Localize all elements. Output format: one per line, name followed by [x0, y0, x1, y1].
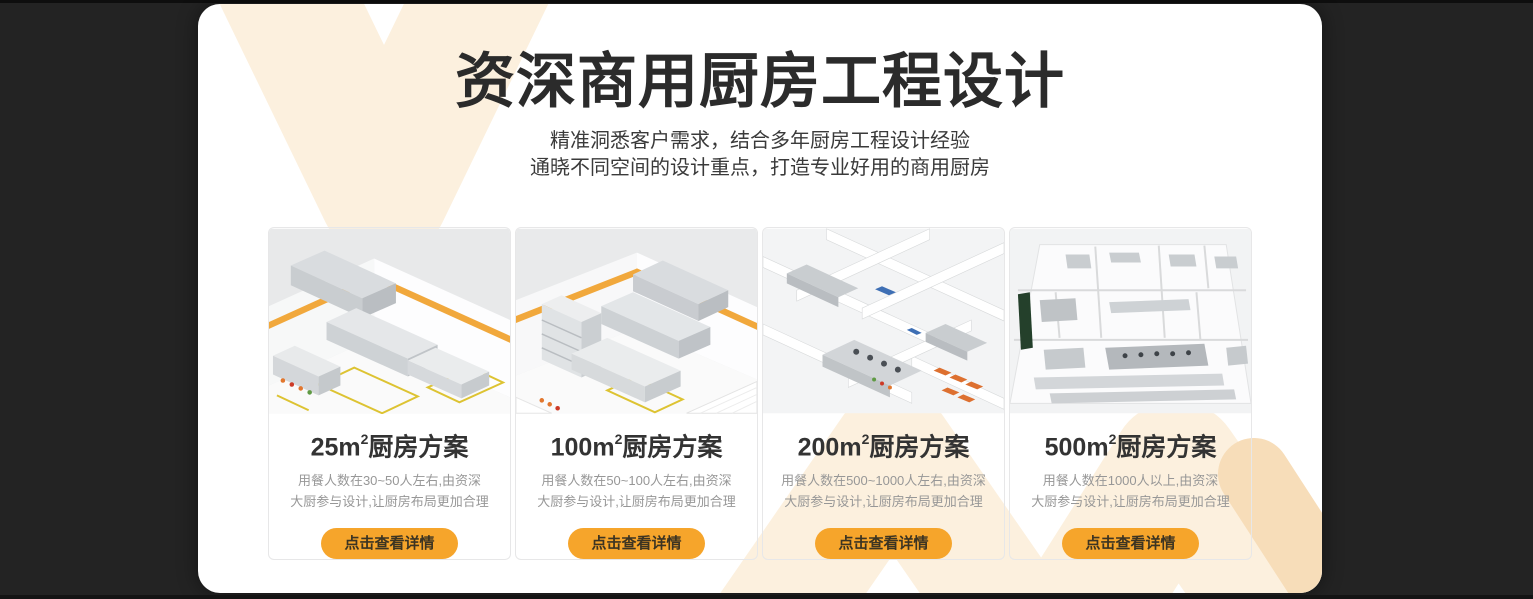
subtitle-line-2: 通晓不同空间的设计重点，打造专业好用的商用厨房	[198, 155, 1322, 182]
view-details-button-25m2[interactable]: 点击查看详情	[321, 528, 457, 559]
bottom-edge-strip	[0, 595, 1533, 599]
card-description: 用餐人数在30~50人左右,由资深 大厨参与设计,让厨房布局更加合理	[269, 470, 510, 512]
view-details-button-100m2[interactable]: 点击查看详情	[568, 528, 704, 559]
card-title: 25m2厨房方案	[269, 426, 510, 462]
card-title: 500m2厨房方案	[1010, 426, 1251, 462]
card-description: 用餐人数在1000人以上,由资深 大厨参与设计,让厨房布局更加合理	[1010, 470, 1251, 512]
page-background: { "header": { "title": "资深商用厨房工程设计", "su…	[0, 0, 1533, 599]
subtitle-line-1: 精准洞悉客户需求，结合多年厨房工程设计经验	[198, 128, 1322, 155]
plan-card-200m2: 200m2厨房方案 用餐人数在500~1000人左右,由资深 大厨参与设计,让厨…	[762, 227, 1005, 560]
plan-card-25m2: 25m2厨房方案 用餐人数在30~50人左右,由资深 大厨参与设计,让厨房布局更…	[268, 227, 511, 560]
view-details-button-500m2[interactable]: 点击查看详情	[1062, 528, 1198, 559]
plan-cards-row: 25m2厨房方案 用餐人数在30~50人左右,由资深 大厨参与设计,让厨房布局更…	[268, 227, 1252, 560]
plan-card-100m2: 100m2厨房方案 用餐人数在50~100人左右,由资深 大厨参与设计,让厨房布…	[515, 227, 758, 560]
kitchen-render-25m2-image	[269, 228, 510, 414]
card-title: 200m2厨房方案	[763, 426, 1004, 462]
card-title: 100m2厨房方案	[516, 426, 757, 462]
plan-card-500m2: 500m2厨房方案 用餐人数在1000人以上,由资深 大厨参与设计,让厨房布局更…	[1009, 227, 1252, 560]
kitchen-render-100m2-image	[516, 228, 757, 414]
card-description: 用餐人数在500~1000人左右,由资深 大厨参与设计,让厨房布局更加合理	[763, 470, 1004, 512]
view-details-button-200m2[interactable]: 点击查看详情	[815, 528, 951, 559]
kitchen-render-200m2-image	[763, 228, 1004, 414]
top-edge-strip	[0, 0, 1533, 3]
content-panel: 资深商用厨房工程设计 精准洞悉客户需求，结合多年厨房工程设计经验 通晓不同空间的…	[198, 4, 1322, 593]
kitchen-render-500m2-image	[1010, 228, 1251, 414]
chevron-accent-corner	[1254, 474, 1322, 593]
section-header: 资深商用厨房工程设计 精准洞悉客户需求，结合多年厨房工程设计经验 通晓不同空间的…	[198, 50, 1322, 182]
page-title: 资深商用厨房工程设计	[198, 50, 1322, 114]
card-description: 用餐人数在50~100人左右,由资深 大厨参与设计,让厨房布局更加合理	[516, 470, 757, 512]
